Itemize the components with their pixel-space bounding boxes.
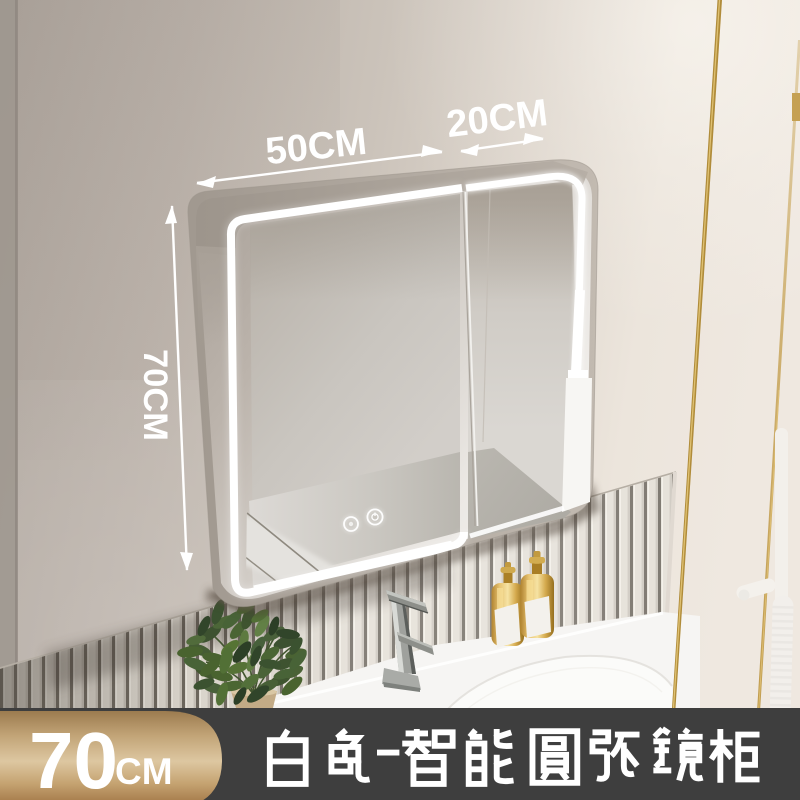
- svg-text:70CM: 70CM: [136, 349, 174, 441]
- svg-text:CM: CM: [115, 751, 173, 792]
- svg-text:70: 70: [29, 716, 118, 800]
